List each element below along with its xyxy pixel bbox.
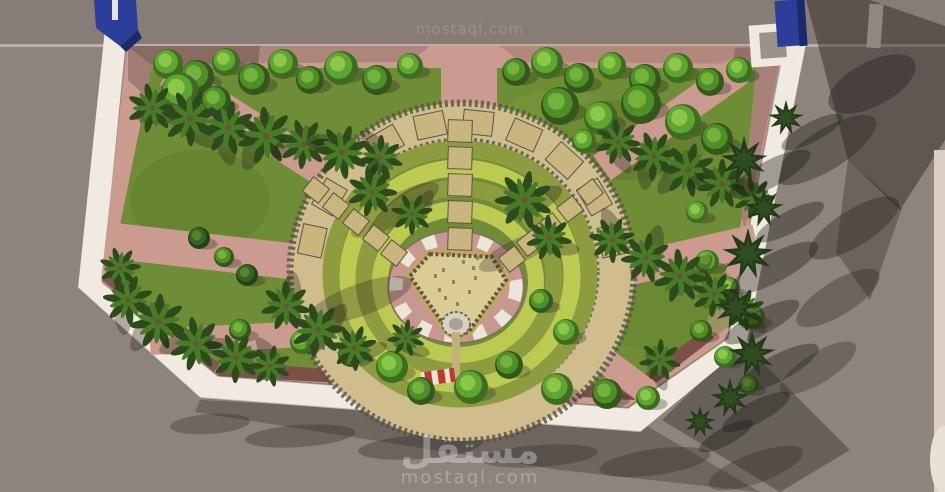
tree-canopy-light <box>240 267 250 277</box>
tree-canopy-light <box>731 61 743 73</box>
tree-canopy-light <box>168 79 185 96</box>
tree-canopy-light <box>500 355 513 368</box>
tree-canopy-light <box>707 128 721 142</box>
speckle <box>476 256 479 260</box>
speckle <box>448 252 451 256</box>
palm-crown <box>149 105 155 111</box>
speckle <box>434 274 437 278</box>
tree-canopy-light <box>382 356 396 370</box>
tree-canopy-light <box>628 90 646 108</box>
paver-stone <box>448 174 473 197</box>
paver-stone <box>448 147 473 170</box>
tree-canopy-light <box>671 109 687 125</box>
tree-canopy-light <box>244 68 258 82</box>
tree-canopy-light <box>206 91 220 105</box>
speckle <box>438 288 441 292</box>
tree-canopy-light <box>218 250 227 259</box>
tree-canopy-light <box>507 62 520 75</box>
fountain-center <box>449 318 463 330</box>
tree-canopy-light <box>701 72 714 85</box>
tree-canopy-light <box>590 106 605 121</box>
speckle <box>442 268 445 272</box>
tree-canopy-light <box>367 70 381 84</box>
gate-left-post <box>112 0 118 20</box>
tree-canopy-light <box>533 293 544 304</box>
tree-canopy-light <box>576 133 587 144</box>
tree-canopy-light <box>640 390 651 401</box>
tree-canopy-light <box>158 54 172 68</box>
tree-canopy-light <box>718 349 728 359</box>
speckle <box>444 296 447 300</box>
watermark-top: mostaql.com <box>416 20 524 38</box>
watermark-logo: مستقل <box>401 428 540 472</box>
tree-canopy-light <box>412 381 425 394</box>
tree-canopy-light <box>217 52 230 65</box>
paver-stone <box>448 228 473 251</box>
tree-canopy-light <box>548 93 565 110</box>
speckle <box>462 260 465 264</box>
speckle <box>472 266 475 270</box>
tree-canopy-light <box>273 54 287 68</box>
tree-canopy-light <box>330 56 345 71</box>
tree-canopy-light <box>460 375 475 390</box>
scene-svg: mostaql.com مستقل mostaql.com <box>0 0 945 492</box>
speckle <box>456 302 459 306</box>
tree-canopy-light <box>603 56 616 69</box>
tree-canopy-light <box>547 378 561 392</box>
tree-canopy-light <box>192 230 202 240</box>
tree-canopy-light <box>597 384 611 398</box>
tree-canopy-light <box>694 323 704 333</box>
aerial-park-render: mostaql.com مستقل mostaql.com <box>0 0 945 492</box>
speckle <box>468 290 471 294</box>
tree-canopy-light <box>558 323 570 335</box>
tree-canopy-light <box>301 70 314 83</box>
paver-stone <box>448 201 473 224</box>
tree-canopy-light <box>569 68 583 82</box>
tree-canopy-light <box>537 52 551 66</box>
speckle <box>474 276 477 280</box>
paver-stone <box>448 120 473 143</box>
tree-canopy-light <box>635 69 649 83</box>
speckle <box>452 280 455 284</box>
watermark-url: mostaql.com <box>401 467 540 488</box>
tree-canopy-light <box>402 57 414 69</box>
tree-canopy-light <box>668 58 682 72</box>
tree-canopy-light <box>690 204 700 214</box>
tree-canopy-light <box>233 322 243 332</box>
